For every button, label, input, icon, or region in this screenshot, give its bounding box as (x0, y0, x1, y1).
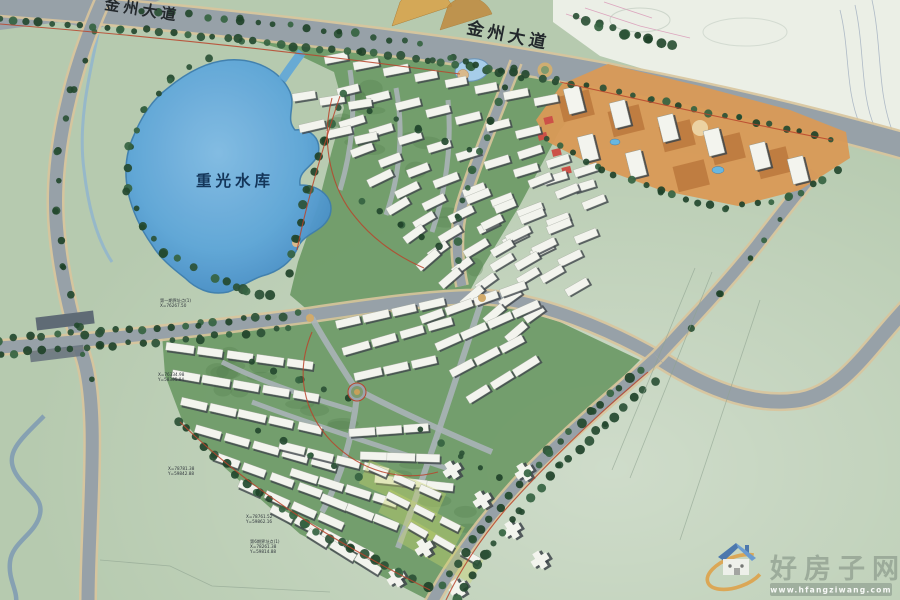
survey-annotation: Y=59842.88 (167, 471, 194, 476)
survey-annotation: Y=58365.84 (157, 377, 184, 382)
reservoir-label: 重光水库 (196, 171, 274, 190)
watermark-url: www.hfangziwang.com (770, 586, 891, 595)
survey-annotation: Y=59862.16 (245, 519, 272, 524)
map-graphics: 第一期界址点(1)X=76267.50X=76334.98Y=58365.84X… (0, 0, 900, 600)
survey-annotation: Y=59814.88 (249, 549, 276, 554)
master-plan-svg: 第一期界址点(1)X=76267.50X=76334.98Y=58365.84X… (0, 0, 900, 600)
watermark-site-name: 好房子网 (769, 554, 900, 585)
survey-annotation: X=76267.50 (160, 303, 187, 308)
site-plan-screenshot: 第一期界址点(1)X=76267.50X=76334.98Y=58365.84X… (0, 0, 900, 600)
